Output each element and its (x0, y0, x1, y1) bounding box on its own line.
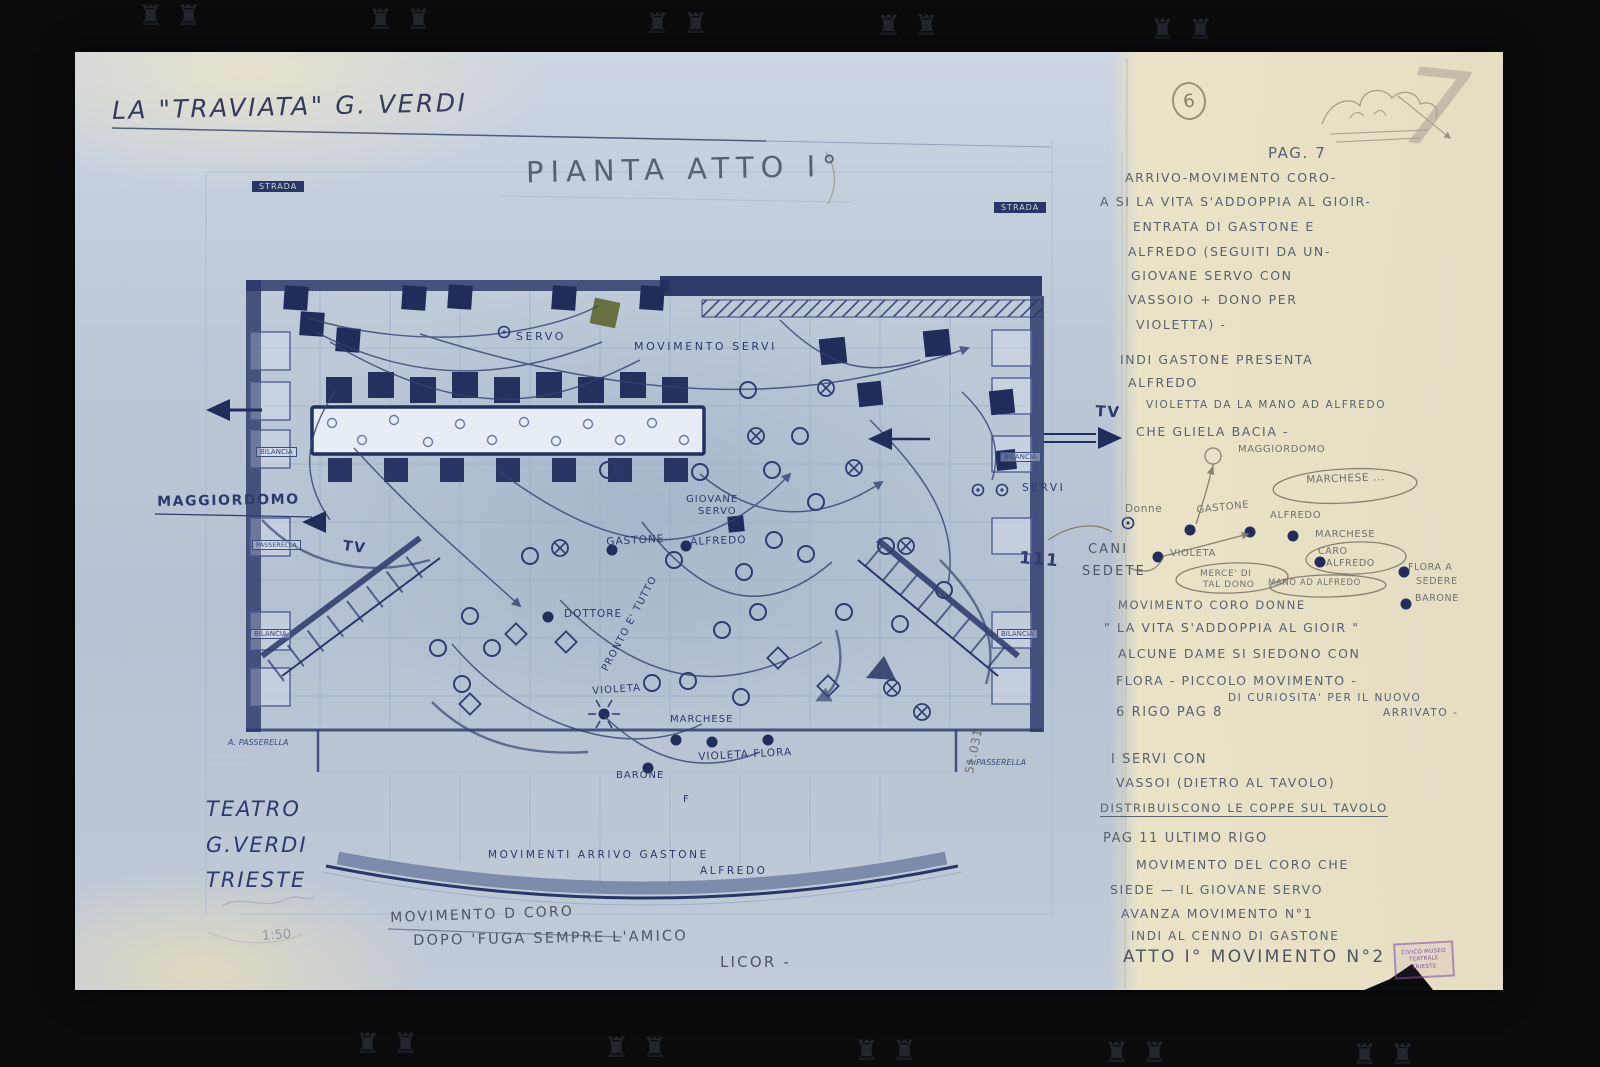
theater-name-block: TEATRO G.VERDI TRIESTE (206, 792, 308, 899)
corner-page-numeral: 7 (1396, 45, 1475, 173)
crown-mark: ♜ (854, 1037, 879, 1065)
crown-mark: ♜ (604, 1034, 629, 1062)
theater-line-3: TRIESTE (206, 863, 308, 899)
crown-mark: ♜ (876, 12, 901, 40)
plan-title: PIANTA ATTO I° (526, 149, 844, 190)
crown-mark: ♜ (393, 1030, 418, 1058)
theater-line-1: TEATRO (206, 792, 308, 828)
scanned-blueprint-scan: ♜♜♜♜♜♜♜♜♜♜♜♜♜♜♜♜♜♜♜♜ STRADASTRADABILANCI… (0, 0, 1600, 1067)
crown-mark: ♜ (645, 10, 670, 38)
crown-mark: ♜ (683, 10, 708, 38)
crown-mark: ♜ (355, 1030, 380, 1058)
stamp-line-3: TRIESTE (1412, 963, 1437, 971)
scale-note: 1:50 (262, 927, 292, 944)
crown-mark: ♜ (892, 1037, 917, 1065)
crown-mark: ♜ (1150, 16, 1175, 44)
crown-mark: ♜ (406, 6, 431, 34)
crown-mark: ♜ (176, 2, 201, 30)
crown-mark: ♜ (1390, 1041, 1415, 1067)
crown-mark: ♜ (368, 6, 393, 34)
crown-mark: ♜ (138, 2, 163, 30)
crown-mark: ♜ (1104, 1039, 1129, 1067)
crown-mark: ♜ (1352, 1041, 1377, 1067)
crown-mark: ♜ (1188, 16, 1213, 44)
museum-stamp: CIVICO MUSEO TEATRALE TRIESTE (1393, 940, 1455, 979)
crown-mark: ♜ (642, 1034, 667, 1062)
theater-line-2: G.VERDI (206, 828, 308, 864)
crown-mark: ♜ (914, 12, 939, 40)
crown-mark: ♜ (1142, 1039, 1167, 1067)
